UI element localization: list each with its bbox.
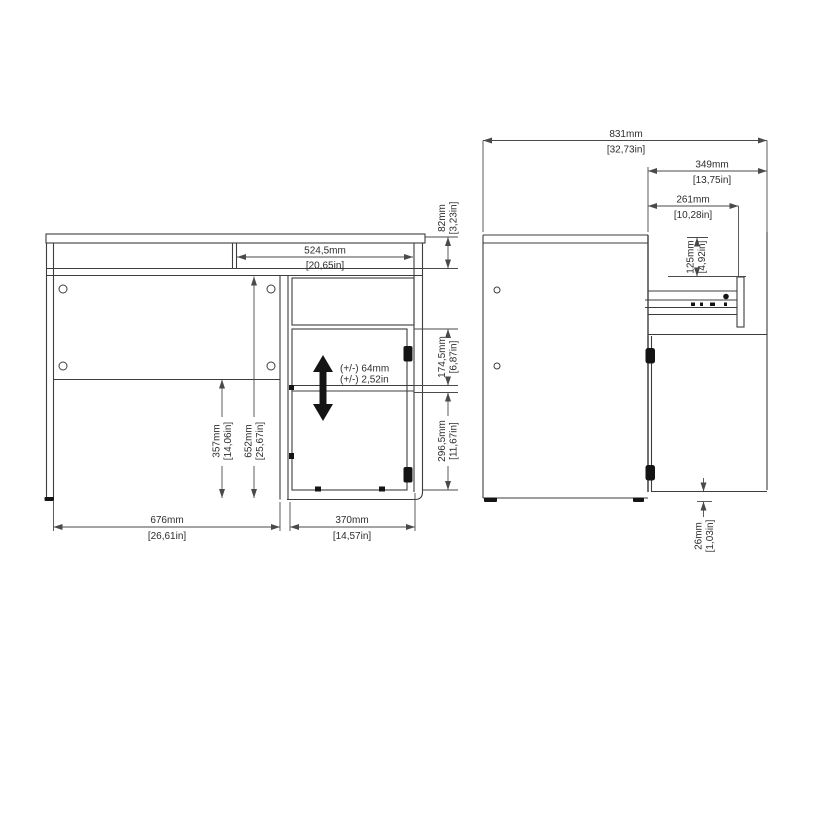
hinge-icon [404,346,413,362]
dim-drawer-front-height: 125mm [4,92in] [668,238,746,277]
dim-label: 676mm [150,515,183,526]
front-view: (+/-) 64mm (+/-) 2,52in 524,5mm [20,65in… [45,201,460,542]
front-back-panel [54,285,281,380]
dim-label: 524,5mm [304,246,346,257]
dim-label: 652mm [244,424,255,457]
dim-drawer-opening: 174,5mm [6,87in] [414,329,460,386]
dim-label: [1,03in] [705,519,716,552]
dim-door-opening: 296,5mm [11,67in] [414,393,460,491]
side-foot [484,498,497,503]
dim-label: 82mm [437,204,448,232]
foot-screw-icon [379,487,385,492]
dim-label: 349mm [695,160,728,171]
runner-roller-icon [723,294,729,300]
dim-label: [13,75in] [693,175,732,186]
dim-panel-to-floor: 357mm [14,06in] [212,380,235,499]
shelf-adjust-label-in: (+/-) 2,52in [340,375,389,386]
dim-label: 125mm [686,240,697,273]
hinge-icon [646,465,656,481]
dim-knee-space-width: 676mm [26,61in] [54,500,281,542]
cam-hole [59,362,67,370]
runner-stop-icon [700,303,703,307]
side-door [646,336,656,492]
shelf-pin-icon [289,453,294,459]
front-apron [46,243,423,276]
dim-label: [14,57in] [333,531,372,542]
runner-stop-icon [724,303,727,307]
dim-label: [26,61in] [148,531,187,542]
runner-stop-icon [710,303,715,307]
dim-label: [11,67in] [449,422,460,460]
cam-hole [59,285,67,293]
shelf-pin-icon [289,385,294,390]
front-desktop [46,234,425,243]
dim-label: 174,5mm [437,336,448,378]
dim-label: 357mm [212,424,223,457]
front-door [289,329,414,492]
side-drawer-open [645,277,744,327]
dim-desktop-height: 82mm [3,23in] [423,201,460,268]
side-foot [633,498,644,503]
dim-label: 26mm [694,522,705,550]
front-left-foot [45,497,55,501]
dim-knee-space-height: 652mm [25,67in] [244,277,267,499]
dim-pedestal-width: 370mm [14,57in] [290,493,415,542]
dim-label: 296,5mm [437,420,448,462]
dim-door-floor-gap: 26mm [1,03in] [694,478,717,552]
front-drawer-front [292,278,414,325]
foot-screw-icon [315,487,321,492]
cam-hole [494,363,500,369]
dim-label: [20,65in] [306,261,345,272]
runner-stop-icon [691,303,695,307]
dim-label: [4,92in] [697,240,708,273]
dim-label: 370mm [335,515,368,526]
shelf-adjust-arrow-icon [313,355,333,421]
dim-label: [3,23in] [449,201,460,234]
dim-label: 831mm [609,129,642,140]
dim-label: [6,87in] [449,340,460,373]
cam-hole [267,285,275,293]
shelf-adjust-label-mm: (+/-) 64mm [340,364,389,375]
dim-label: 261mm [676,195,709,206]
drawing-canvas: (+/-) 64mm (+/-) 2,52in 524,5mm [20,65in… [0,0,823,823]
cam-hole [494,287,500,293]
cam-hole [267,362,275,370]
dim-label: [10,28in] [674,210,713,221]
dim-label: [14,06in] [223,422,234,461]
technical-drawing: (+/-) 64mm (+/-) 2,52in 524,5mm [20,65in… [0,0,823,823]
side-panel [483,235,648,502]
hinge-icon [646,348,656,364]
dim-apron-width: 524,5mm [20,65in] [237,246,413,272]
side-view: 831mm [32,73in] 349mm [13,75in] 261mm [1… [483,129,767,552]
dim-label: [25,67in] [255,422,266,461]
dim-label: [32,73in] [607,145,646,156]
hinge-icon [404,467,413,483]
front-left-leg [45,243,55,501]
